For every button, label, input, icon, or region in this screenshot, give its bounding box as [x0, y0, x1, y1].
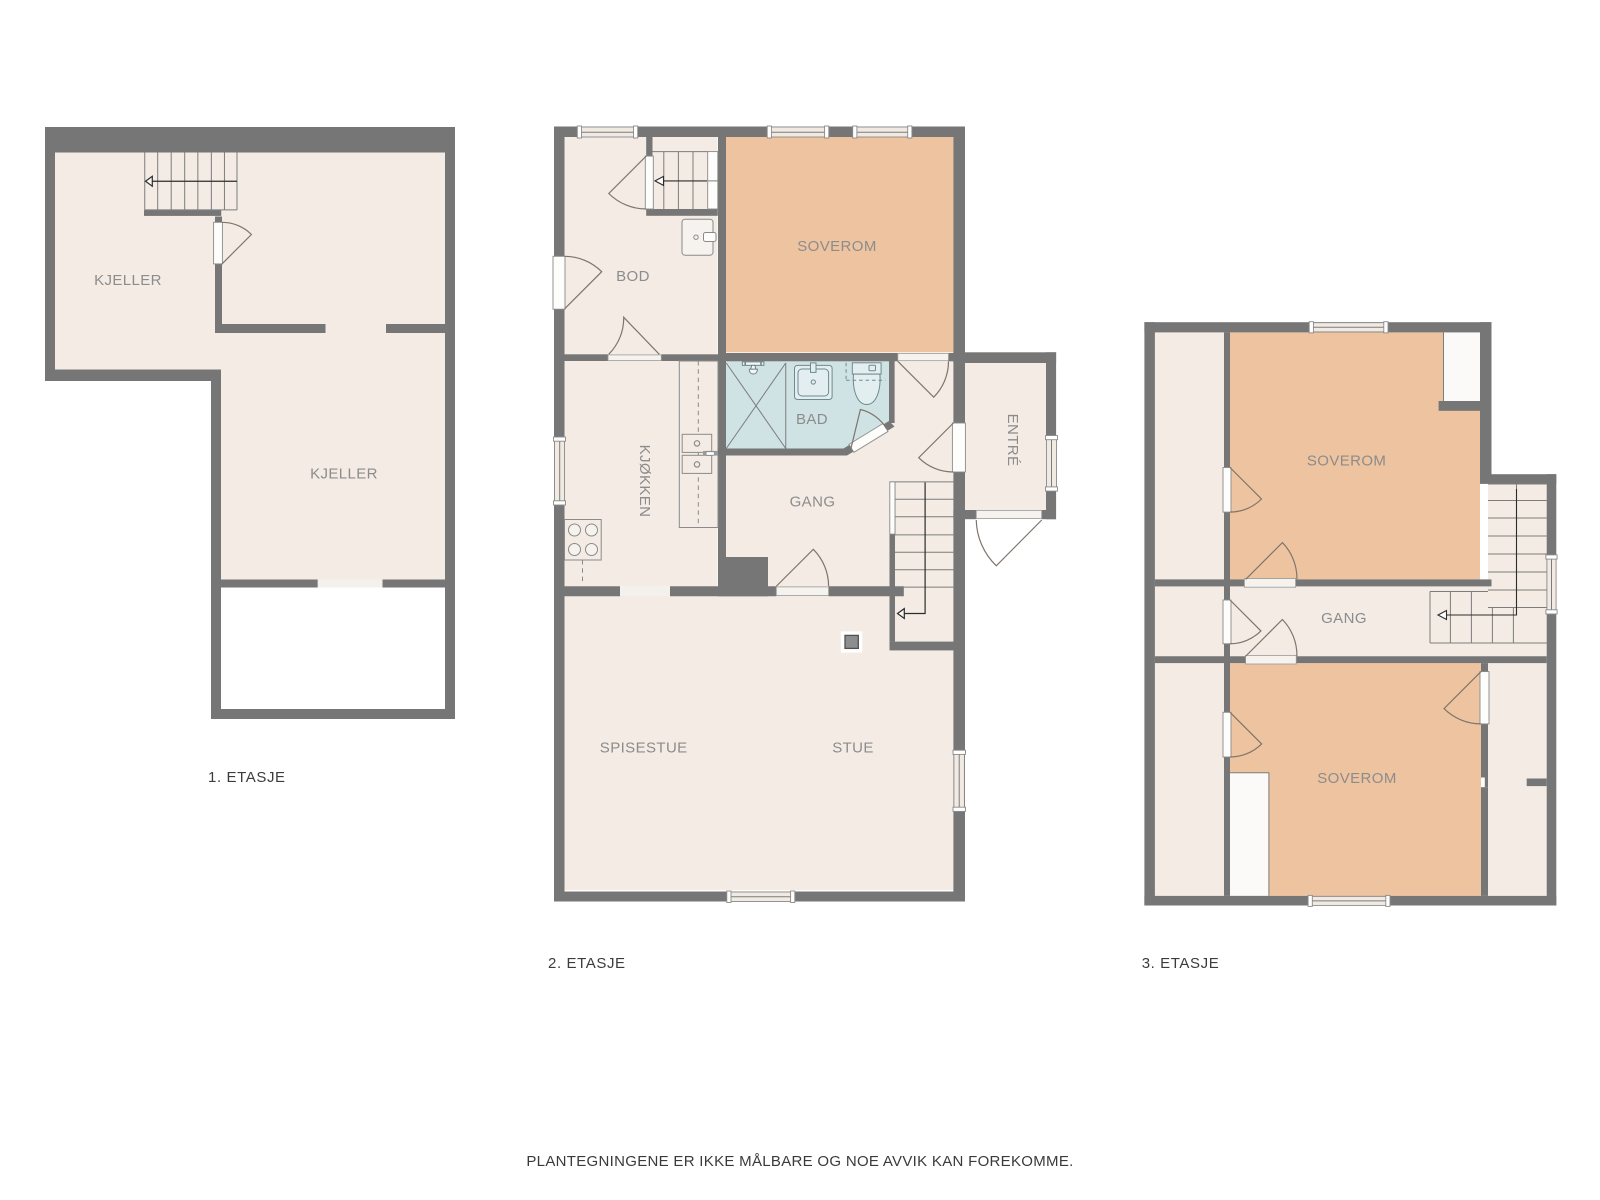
svg-text:SOVEROM: SOVEROM [797, 238, 876, 255]
svg-text:SOVEROM: SOVEROM [1317, 770, 1396, 787]
svg-text:PLANTEGNINGENE ER IKKE MÅLBARE: PLANTEGNINGENE ER IKKE MÅLBARE OG NOE AV… [526, 1153, 1073, 1170]
svg-text:3. ETASJE: 3. ETASJE [1142, 955, 1220, 972]
svg-text:BOD: BOD [616, 268, 650, 285]
svg-text:SPISESTUE: SPISESTUE [600, 740, 688, 757]
svg-text:KJØKKEN: KJØKKEN [636, 445, 653, 518]
svg-text:KJELLER: KJELLER [310, 466, 378, 483]
svg-text:GANG: GANG [1321, 610, 1367, 627]
svg-text:ENTRÉ: ENTRÉ [1004, 414, 1021, 467]
svg-text:BAD: BAD [796, 411, 828, 428]
svg-text:1. ETASJE: 1. ETASJE [208, 769, 286, 786]
svg-text:SOVEROM: SOVEROM [1307, 453, 1386, 470]
svg-text:STUE: STUE [832, 740, 874, 757]
svg-text:KJELLER: KJELLER [94, 272, 162, 289]
svg-text:GANG: GANG [790, 494, 836, 511]
svg-text:2. ETASJE: 2. ETASJE [548, 955, 626, 972]
